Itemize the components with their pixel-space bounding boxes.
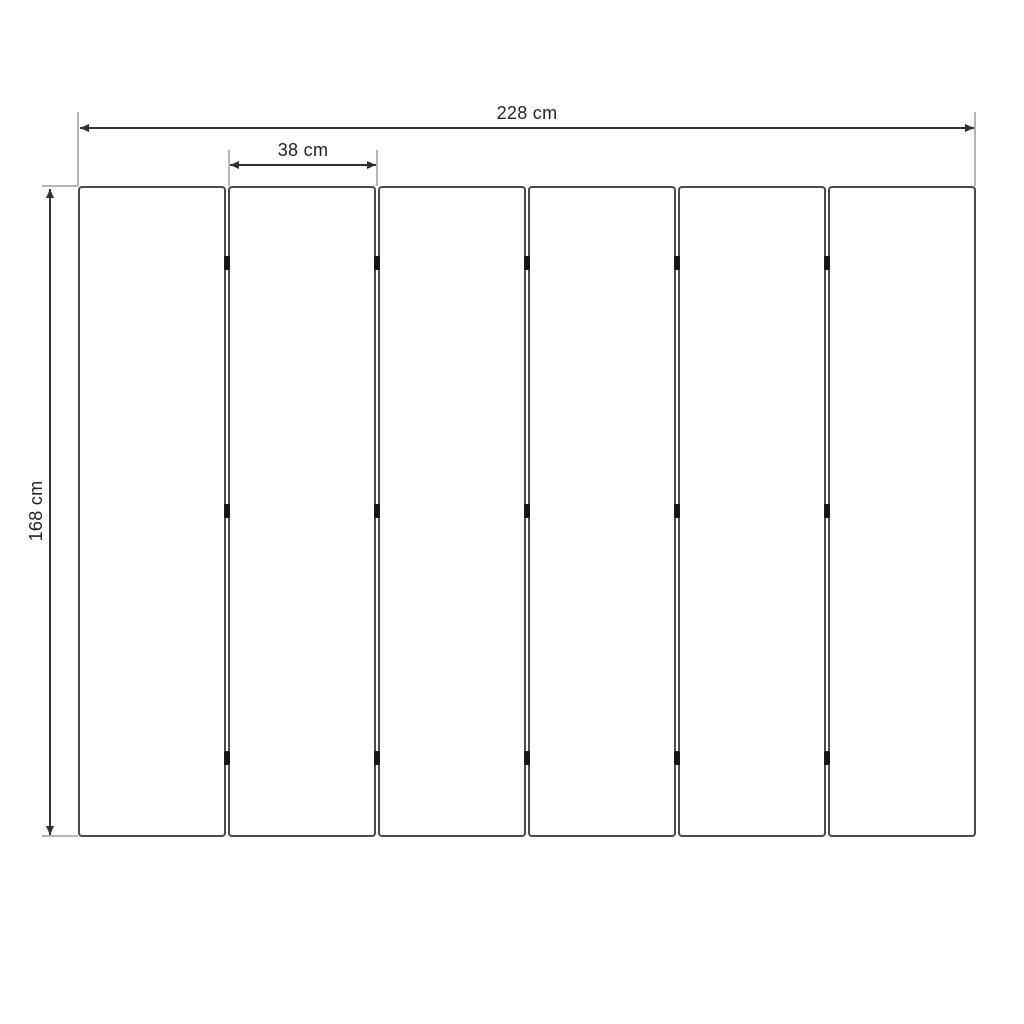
hinge-4-3 <box>674 751 680 765</box>
hinge-2-3 <box>374 751 380 765</box>
hinge-5-1 <box>824 256 830 270</box>
extension-line-panel-left <box>228 150 230 186</box>
extension-line-panel-right <box>376 150 378 186</box>
hinge-1-2 <box>224 504 230 518</box>
height-label: 168 cm <box>26 471 46 551</box>
panel-width-label: 38 cm <box>229 140 377 160</box>
hinge-3-2 <box>524 504 530 518</box>
panel-2 <box>228 186 376 837</box>
extension-tick-bottom <box>42 835 78 837</box>
panel-1 <box>78 186 226 837</box>
hinge-5-2 <box>824 504 830 518</box>
total-width-dim-line <box>80 127 974 129</box>
hinge-2-1 <box>374 256 380 270</box>
extension-line-left <box>77 112 79 186</box>
extension-tick-top <box>42 185 78 187</box>
diagram-canvas: 228 cm 38 cm 168 cm <box>0 0 1024 1024</box>
hinge-2-2 <box>374 504 380 518</box>
hinge-4-2 <box>674 504 680 518</box>
panel-4 <box>528 186 676 837</box>
panel-width-dim-line <box>230 164 376 166</box>
hinge-5-3 <box>824 751 830 765</box>
panel-5 <box>678 186 826 837</box>
hinge-3-3 <box>524 751 530 765</box>
panel-6 <box>828 186 976 837</box>
extension-line-right <box>974 112 976 186</box>
height-dim-line <box>49 189 51 835</box>
total-width-label: 228 cm <box>78 103 976 123</box>
panel-3 <box>378 186 526 837</box>
hinge-1-3 <box>224 751 230 765</box>
hinge-4-1 <box>674 256 680 270</box>
hinge-1-1 <box>224 256 230 270</box>
hinge-3-1 <box>524 256 530 270</box>
